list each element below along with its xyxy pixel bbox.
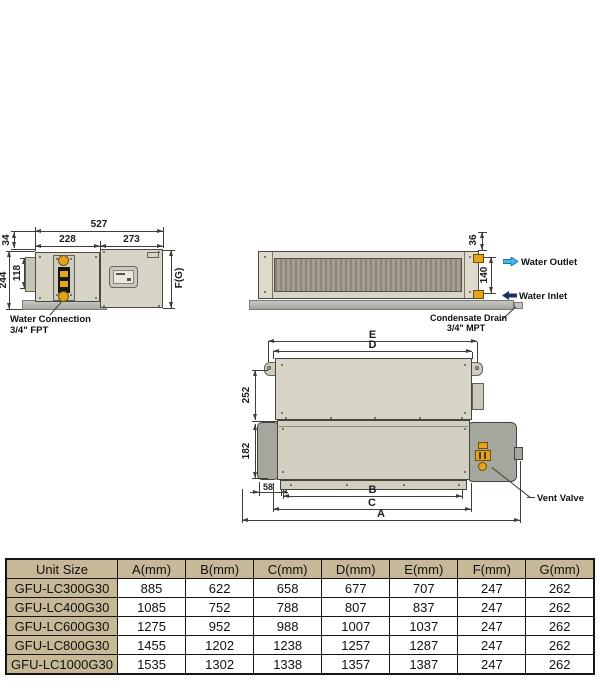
nameplate-mark	[116, 273, 125, 275]
dimension-value-cell: 952	[186, 617, 254, 636]
water-connection-line1: Water Connection	[10, 314, 91, 325]
valve-indicator	[60, 271, 68, 277]
dimension-value-cell: 1085	[118, 598, 186, 617]
extension-line	[163, 227, 164, 248]
dimension-value-cell: 1287	[390, 636, 458, 655]
end-cap-left	[259, 252, 273, 298]
dim-58-label: 58	[256, 482, 280, 492]
dim-c-label: C	[273, 498, 471, 509]
dim-244-line	[9, 251, 10, 309]
water-fitting-top	[58, 255, 69, 266]
table-row: GFU-LC800G3014551202123812571287247262	[6, 636, 594, 655]
dim-228-line	[35, 246, 100, 247]
column-header: F(mm)	[458, 559, 526, 579]
plan-lower-casing	[277, 420, 470, 480]
dimension-value-cell: 1238	[254, 636, 322, 655]
coil-grille	[274, 258, 462, 292]
terminal-box	[147, 252, 159, 258]
unit-size-cell: GFU-LC1000G30	[6, 655, 118, 675]
dim-34-line	[14, 232, 15, 248]
dim-252-label: 252	[242, 387, 252, 404]
side-tab	[472, 383, 484, 410]
extension-line	[484, 293, 496, 294]
column-header: E(mm)	[390, 559, 458, 579]
dim-34-label: 34	[2, 234, 12, 245]
dimension-value-cell: 1535	[118, 655, 186, 675]
compartment-stub	[514, 447, 523, 460]
dimension-value-cell: 752	[186, 598, 254, 617]
dim-140-label: 140	[480, 267, 490, 284]
dimension-value-cell: 1455	[118, 636, 186, 655]
extension-line	[268, 342, 269, 362]
dimension-value-cell: 837	[390, 598, 458, 617]
dim-273-line	[100, 246, 163, 247]
column-header: B(mm)	[186, 559, 254, 579]
dim-a-label: A	[242, 509, 520, 520]
dimension-value-cell: 247	[458, 579, 526, 598]
dim-fg-line	[171, 250, 172, 308]
dimension-value-cell: 247	[458, 636, 526, 655]
dimension-value-cell: 1007	[322, 617, 390, 636]
dim-228-label: 228	[35, 235, 100, 245]
spec-sheet-page: 527 228 273 34 244 118 F(G) Water Connec…	[0, 0, 600, 690]
dim-273-label: 273	[100, 235, 163, 245]
dimension-value-cell: 1357	[322, 655, 390, 675]
dimension-value-cell: 262	[526, 579, 594, 598]
vent-valve-fitting	[478, 442, 488, 449]
water-port-bottom	[473, 290, 484, 299]
dimension-value-cell: 988	[254, 617, 322, 636]
extension-line	[520, 461, 521, 523]
extension-line	[273, 352, 274, 359]
dimension-value-cell: 247	[458, 655, 526, 675]
water-connection-line2: 3/4" FPT	[10, 325, 91, 336]
dim-182-label: 182	[242, 443, 252, 460]
table-header-row: Unit SizeA(mm)B(mm)C(mm)D(mm)E(mm)F(mm)G…	[6, 559, 594, 579]
dim-d-line	[273, 351, 472, 352]
table-row: GFU-LC600G30127595298810071037247262	[6, 617, 594, 636]
extension-line	[471, 483, 472, 512]
dimension-value-cell: 658	[254, 579, 322, 598]
dim-d-label: D	[273, 340, 472, 351]
unit-size-cell: GFU-LC400G30	[6, 598, 118, 617]
vent-valve-cap	[478, 462, 487, 471]
dimension-value-cell: 247	[458, 598, 526, 617]
water-fitting-bottom	[58, 291, 69, 302]
dim-36-line	[482, 232, 483, 250]
dimension-value-cell: 247	[458, 617, 526, 636]
unit-size-cell: GFU-LC600G30	[6, 617, 118, 636]
plan-upper-casing	[275, 358, 472, 420]
unit-size-cell: GFU-LC800G30	[6, 636, 118, 655]
water-port-top	[473, 254, 484, 263]
dim-fg-label: F(G)	[175, 268, 185, 289]
dimension-value-cell: 262	[526, 636, 594, 655]
dimension-value-cell: 262	[526, 655, 594, 675]
dimension-value-cell: 788	[254, 598, 322, 617]
dimension-value-cell: 1338	[254, 655, 322, 675]
extension-line	[11, 249, 35, 250]
unit-size-cell: GFU-LC300G30	[6, 579, 118, 598]
column-header: G(mm)	[526, 559, 594, 579]
dimensions-table: Unit SizeA(mm)B(mm)C(mm)D(mm)E(mm)F(mm)G…	[5, 558, 595, 675]
drain-pan	[249, 300, 514, 310]
dim-252-line	[255, 370, 256, 420]
dimension-value-cell: 622	[186, 579, 254, 598]
vent-valve-body	[475, 450, 491, 461]
end-cap-left-plan	[257, 422, 279, 480]
vent-valve-mark	[479, 452, 481, 459]
vent-valve-mark	[484, 452, 486, 459]
dimension-value-cell: 885	[118, 579, 186, 598]
extension-line	[252, 478, 268, 479]
nameplate-mark	[127, 278, 131, 281]
valve-indicator	[60, 281, 68, 287]
dim-118-label: 118	[13, 265, 23, 281]
extension-line	[163, 308, 175, 309]
table-row: GFU-LC1000G3015351302133813571387247262	[6, 655, 594, 675]
dim-527-label: 527	[35, 220, 163, 230]
bracket-hole	[475, 366, 479, 370]
condensate-line1: Condensate Drain	[430, 313, 502, 323]
column-header: A(mm)	[118, 559, 186, 579]
dim-36-label: 36	[469, 234, 479, 245]
dimension-value-cell: 1275	[118, 617, 186, 636]
dimension-value-cell: 677	[322, 579, 390, 598]
water-outlet-arrow-icon	[503, 257, 518, 266]
dimension-value-cell: 262	[526, 617, 594, 636]
dim-182-line	[255, 424, 256, 478]
table-row: GFU-LC300G30885622658677707247262	[6, 579, 594, 598]
dim-527-line	[35, 231, 163, 232]
extension-line	[477, 342, 478, 362]
dim-a-line	[242, 520, 520, 521]
dimension-value-cell: 262	[526, 598, 594, 617]
screw-dots	[0, 0, 2, 2]
water-connection-label: Water Connection 3/4" FPT	[10, 314, 91, 336]
water-inlet-arrow-icon	[502, 291, 517, 300]
table-row: GFU-LC400G301085752788807837247262	[6, 598, 594, 617]
column-header: Unit Size	[6, 559, 118, 579]
dimension-value-cell: 707	[390, 579, 458, 598]
dimension-value-cell: 1202	[186, 636, 254, 655]
extension-line	[478, 250, 487, 251]
dim-140-line	[491, 257, 492, 293]
extension-line	[252, 421, 277, 422]
column-header: D(mm)	[322, 559, 390, 579]
dimension-value-cell: 807	[322, 598, 390, 617]
dim-244-label: 244	[0, 272, 9, 289]
dimension-value-cell: 1037	[390, 617, 458, 636]
leader-line	[527, 497, 535, 498]
column-header: C(mm)	[254, 559, 322, 579]
vent-valve-label: Vent Valve	[537, 493, 584, 504]
dimension-value-cell: 1257	[322, 636, 390, 655]
dimension-value-cell: 1387	[390, 655, 458, 675]
water-inlet-label: Water Inlet	[519, 291, 567, 302]
extension-line	[472, 352, 473, 359]
dimension-value-cell: 1302	[186, 655, 254, 675]
panel-seam	[279, 426, 468, 427]
dim-b-label: B	[283, 485, 462, 496]
water-outlet-label: Water Outlet	[521, 257, 577, 268]
